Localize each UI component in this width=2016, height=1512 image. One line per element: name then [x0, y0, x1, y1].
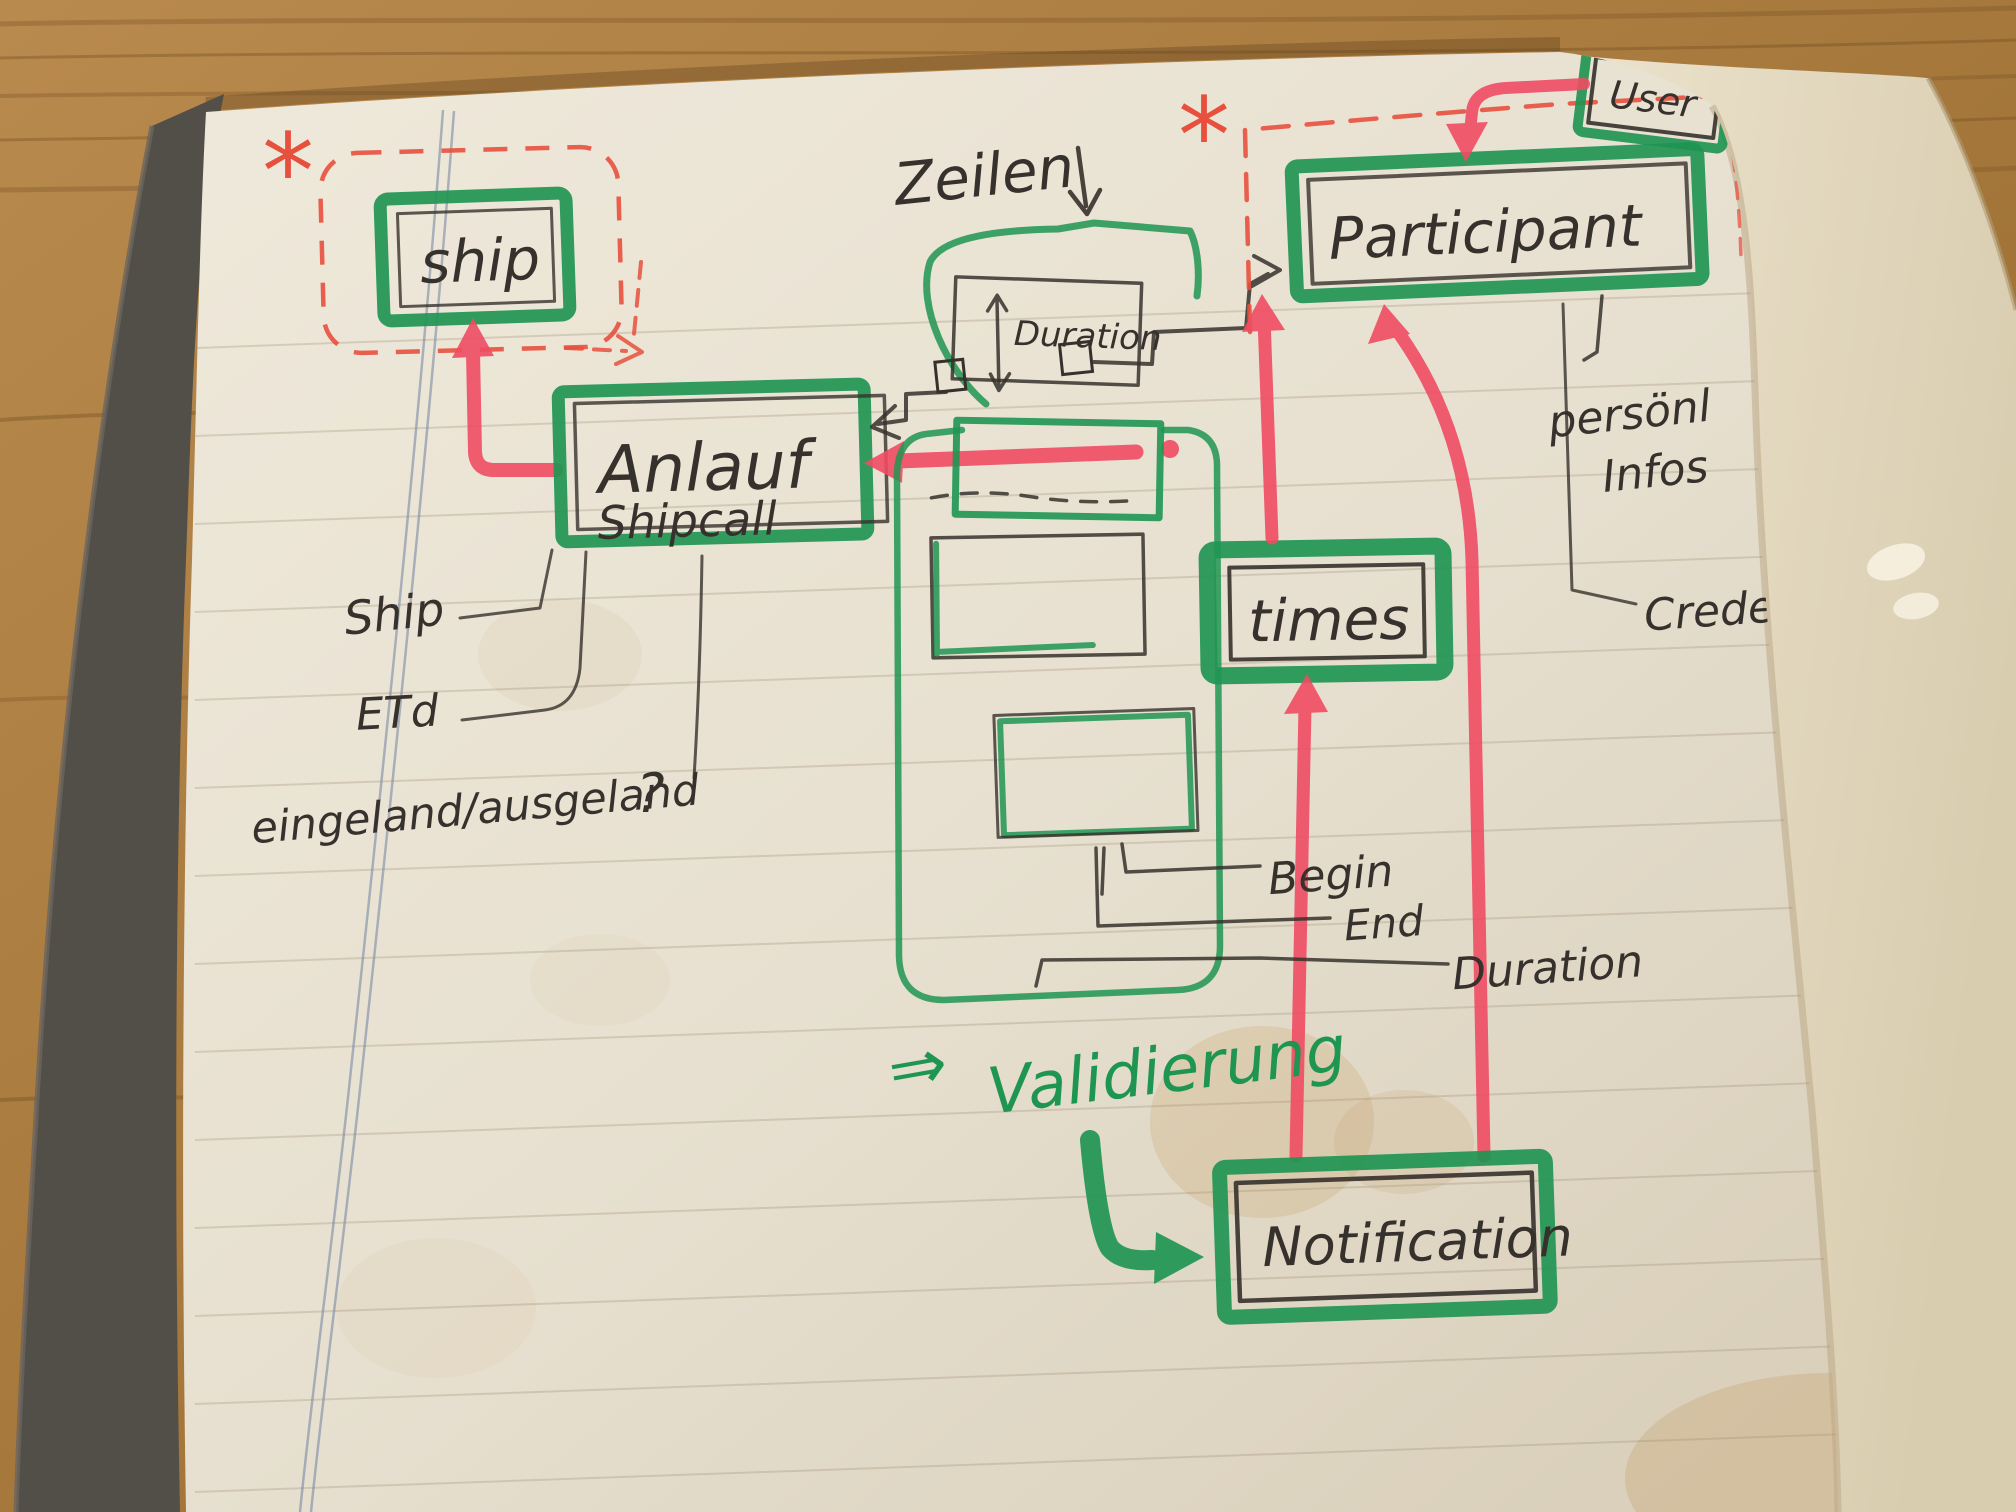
notification-entity-label: Notification: [1261, 1205, 1574, 1279]
notebook-photo: * ship Anlauf Shipcall: [0, 0, 2016, 1512]
end-label: End: [1342, 896, 1425, 950]
ship-attr-label: Ship: [341, 581, 446, 645]
participant-entity-label: Participant: [1327, 191, 1645, 273]
etd-label: ETd: [355, 685, 441, 740]
asterisk-right-label: *: [1178, 75, 1230, 197]
ship-entity-label: ship: [419, 225, 541, 297]
times-entity-label: times: [1248, 585, 1410, 656]
begin-label: Begin: [1266, 846, 1395, 906]
duration-box-label: Duration: [1013, 314, 1162, 359]
shipcall-entity-label: Shipcall: [597, 491, 778, 550]
asterisk-left-label: *: [262, 111, 314, 233]
question-label: ?: [636, 762, 665, 825]
